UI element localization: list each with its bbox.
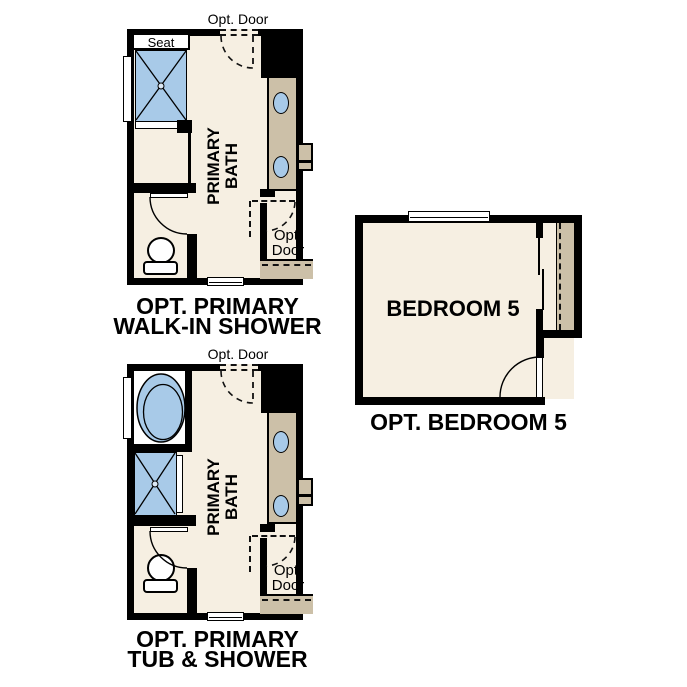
toilet-room-top-wall [127, 515, 196, 526]
closet-rod-dashed [559, 223, 562, 330]
toilet-room-right-wall [187, 234, 197, 278]
tub-shower-divider-wall [127, 444, 192, 452]
sink-icon [273, 495, 289, 517]
window-line [410, 217, 488, 219]
bottom-wall [355, 397, 545, 405]
opt-door-side-line1: Opt. [264, 563, 312, 578]
tub-room-right-wall [185, 368, 192, 445]
closet-divider-stub [260, 524, 275, 532]
opt-door-header-dashed [252, 200, 295, 203]
cased-opening-line [209, 617, 242, 619]
opt-door-side-line1: Opt. [264, 228, 312, 243]
opt-door-opening [220, 364, 258, 371]
closet-right-wall [574, 215, 582, 338]
shower-glass-door [135, 121, 178, 129]
wall-mass-top-right [261, 29, 300, 78]
room-label-primary-bath: PRIMARY BATH [205, 124, 243, 208]
sink-icon [273, 156, 289, 178]
caption-line2: WALK-IN SHOWER [105, 316, 330, 336]
closet-shelf [260, 259, 313, 279]
room-label-bedroom-5: BEDROOM 5 [363, 296, 543, 322]
plan-linework [0, 0, 687, 687]
toilet-room-door-leaf [150, 527, 188, 532]
sink-icon [273, 92, 289, 114]
wall-niche-line [299, 160, 313, 163]
toilet-tank-icon [143, 261, 178, 275]
opt-door-leaf-dashed [249, 201, 252, 237]
window [408, 211, 490, 222]
opt-door-header-dashed [252, 535, 295, 538]
plan-caption: OPT. PRIMARY TUB & SHOWER [105, 629, 330, 669]
shower-glass-panel [123, 56, 132, 122]
opt-door-top-label: Opt. Door [198, 12, 278, 27]
toilet-bowl-icon [147, 237, 175, 264]
closet-divider-stub [260, 189, 275, 197]
wall-niche [299, 143, 313, 171]
toilet-room-right-wall [187, 568, 197, 614]
closet-shelf [260, 594, 313, 614]
opt-door-side-line2: Door [264, 243, 312, 258]
toilet-bowl-icon [147, 554, 175, 582]
caption-line2: TUB & SHOWER [105, 649, 330, 669]
opt-door-opening [220, 29, 258, 36]
closet-rod-dashed [262, 264, 311, 267]
opt-door-leaf-dashed [249, 536, 252, 572]
plan-caption: OPT. PRIMARY WALK-IN SHOWER [105, 296, 330, 336]
left-wall [355, 215, 363, 405]
wall-mass-top-right [261, 364, 300, 413]
room-label-line2: BATH [223, 124, 241, 208]
shower-seat-label: Seat [132, 36, 190, 49]
opt-door-side-line2: Door [264, 578, 312, 593]
closet-bypass-door-panel [538, 237, 540, 275]
bedroom-door-leaf [536, 357, 543, 398]
tub-room-floor [134, 371, 185, 444]
shower [134, 452, 177, 516]
cased-opening-line [209, 282, 242, 284]
closet-jamb-top [536, 223, 543, 238]
right-wall-below-closet [536, 330, 544, 358]
wall-niche [299, 478, 313, 506]
wall-niche-line [299, 494, 313, 497]
room-label-line1: PRIMARY [205, 124, 223, 208]
shower-entry-wall [188, 133, 191, 185]
toilet-room-door-leaf [150, 193, 188, 198]
opt-door-side-label: Opt. Door [264, 228, 312, 258]
walk-in-shower [135, 50, 187, 123]
toilet-tank-icon [143, 579, 178, 593]
floorplan-sheet: Seat Opt. Door PRIMARY BATH Opt. Door OP… [0, 0, 687, 687]
room-label-primary-bath: PRIMARY BATH [205, 455, 243, 539]
opt-door-top-label: Opt. Door [198, 347, 278, 362]
room-label-line1: PRIMARY [205, 455, 223, 539]
toilet-room-top-wall [127, 183, 196, 193]
cased-opening [207, 277, 244, 286]
cased-opening [207, 612, 244, 621]
shower-corner-wall [177, 120, 192, 133]
room-label-line2: BATH [223, 455, 241, 539]
plan-caption: OPT. BEDROOM 5 [355, 412, 582, 432]
shower-glass-door [176, 455, 183, 513]
sink-icon [273, 431, 289, 453]
closet-rod-dashed [262, 599, 311, 602]
opt-door-side-label: Opt. Door [264, 563, 312, 593]
tub-glass-panel [123, 377, 132, 439]
